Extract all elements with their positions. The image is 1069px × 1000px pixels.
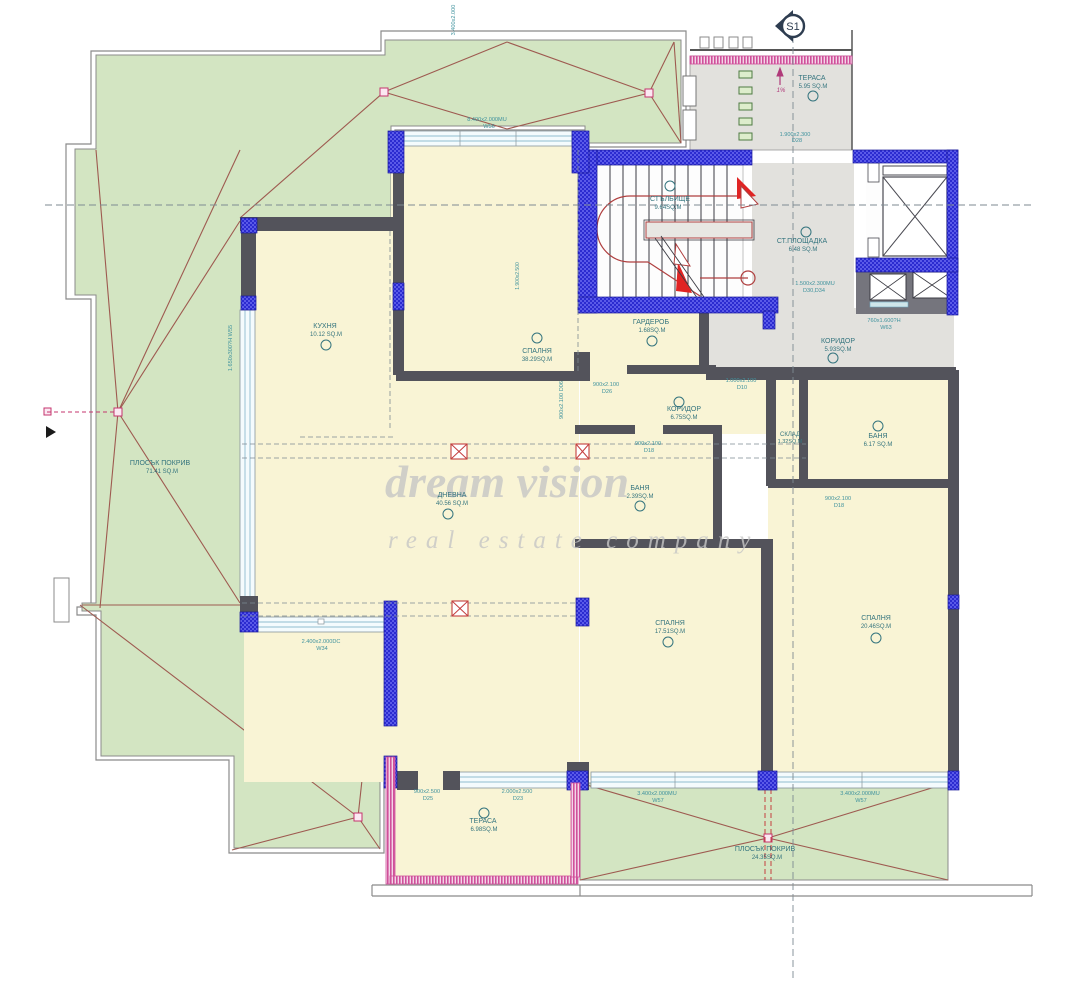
svg-text:dream vision: dream vision bbox=[385, 456, 629, 507]
svg-text:6.75SQ.M: 6.75SQ.M bbox=[670, 415, 697, 421]
svg-text:1.650x300?H W55: 1.650x300?H W55 bbox=[228, 325, 234, 371]
svg-text:W63: W63 bbox=[880, 325, 892, 331]
svg-text:2.39SQ.M: 2.39SQ.M bbox=[626, 494, 653, 500]
svg-text:D23: D23 bbox=[513, 796, 523, 802]
svg-text:W56: W56 bbox=[483, 124, 495, 130]
svg-text:3.400x2.000MU: 3.400x2.000MU bbox=[840, 791, 880, 797]
svg-text:9.64SQ.M: 9.64SQ.M bbox=[654, 205, 681, 211]
svg-text:40.56 SQ.M: 40.56 SQ.M bbox=[436, 501, 468, 507]
svg-text:БАНЯ: БАНЯ bbox=[868, 433, 887, 440]
svg-text:71.41 SQ.M: 71.41 SQ.M bbox=[146, 469, 178, 475]
svg-text:900x2.500: 900x2.500 bbox=[414, 789, 440, 795]
svg-text:ТЕРАСА: ТЕРАСА bbox=[469, 818, 497, 825]
svg-text:real estate company: real estate company bbox=[388, 527, 759, 554]
svg-text:БАНЯ: БАНЯ bbox=[630, 485, 649, 492]
svg-text:38.29SQ.M: 38.29SQ.M bbox=[522, 357, 552, 363]
svg-text:ПЛОСЪК ПОКРИВ: ПЛОСЪК ПОКРИВ bbox=[735, 846, 796, 853]
svg-text:W34: W34 bbox=[316, 646, 328, 652]
svg-text:1%: 1% bbox=[777, 88, 786, 94]
svg-text:D10: D10 bbox=[737, 385, 747, 391]
svg-text:СПАЛНЯ: СПАЛНЯ bbox=[655, 620, 685, 627]
svg-text:6.98SQ.M: 6.98SQ.M bbox=[470, 827, 497, 833]
svg-text:W57: W57 bbox=[855, 798, 867, 804]
svg-text:3.400x2.000MU: 3.400x2.000MU bbox=[637, 791, 677, 797]
svg-text:КОРИДОР: КОРИДОР bbox=[667, 406, 701, 413]
svg-text:1.68SQ.M: 1.68SQ.M bbox=[638, 328, 665, 334]
svg-text:СТЪЛБИЩЕ: СТЪЛБИЩЕ bbox=[650, 196, 690, 203]
svg-text:D26: D26 bbox=[602, 389, 612, 395]
svg-text:6.17 SQ.M: 6.17 SQ.M bbox=[864, 442, 893, 448]
svg-text:КОРИДОР: КОРИДОР bbox=[821, 338, 855, 345]
svg-text:СПАЛНЯ: СПАЛНЯ bbox=[522, 348, 552, 355]
svg-text:ТЕРАСА: ТЕРАСА bbox=[798, 75, 826, 82]
svg-text:2.000x2.500: 2.000x2.500 bbox=[502, 789, 533, 795]
svg-text:ГАРДЕРОБ: ГАРДЕРОБ bbox=[633, 319, 670, 326]
svg-text:ПЛОСЪК ПОКРИВ: ПЛОСЪК ПОКРИВ bbox=[130, 460, 191, 467]
svg-text:6.48 SQ.M: 6.48 SQ.M bbox=[789, 247, 818, 253]
svg-text:W57: W57 bbox=[652, 798, 664, 804]
svg-text:900x2.100: 900x2.100 bbox=[635, 441, 661, 447]
svg-text:1.000x2.100: 1.000x2.100 bbox=[726, 378, 757, 384]
svg-text:СПАЛНЯ: СПАЛНЯ bbox=[861, 615, 891, 622]
svg-text:760x1.600?H: 760x1.600?H bbox=[867, 318, 900, 324]
svg-text:СКЛАД: СКЛАД bbox=[780, 432, 800, 438]
svg-text:900x2.100: 900x2.100 bbox=[825, 496, 851, 502]
svg-text:D18: D18 bbox=[834, 503, 844, 509]
svg-text:17.51SQ.M: 17.51SQ.M bbox=[655, 629, 685, 635]
svg-text:1.500x2.300MU: 1.500x2.300MU bbox=[795, 281, 835, 287]
svg-text:ДНЕВНА: ДНЕВНА bbox=[438, 492, 467, 499]
svg-text:1.900x2.500: 1.900x2.500 bbox=[515, 262, 521, 290]
svg-text:СТ.ПЛОЩАДКА: СТ.ПЛОЩАДКА bbox=[777, 238, 828, 245]
svg-text:8.400x2.000MU: 8.400x2.000MU bbox=[467, 117, 507, 123]
svg-text:20.46SQ.M: 20.46SQ.M bbox=[861, 624, 891, 630]
svg-text:КУХНЯ: КУХНЯ bbox=[313, 323, 336, 330]
svg-text:900x2.100: 900x2.100 bbox=[593, 382, 619, 388]
svg-text:900x2.100 D06: 900x2.100 D06 bbox=[559, 381, 565, 419]
svg-text:10.12 SQ.M: 10.12 SQ.M bbox=[310, 332, 342, 338]
svg-text:D25: D25 bbox=[423, 796, 433, 802]
svg-text:D30,D34: D30,D34 bbox=[803, 288, 825, 294]
svg-text:5.93SQ.M: 5.93SQ.M bbox=[824, 347, 851, 353]
svg-text:1.32SQ.M: 1.32SQ.M bbox=[778, 439, 803, 445]
svg-text:2.400x2.000DC: 2.400x2.000DC bbox=[302, 639, 341, 645]
svg-text:3.400x2.000: 3.400x2.000 bbox=[451, 5, 457, 36]
svg-text:S1: S1 bbox=[786, 21, 799, 33]
svg-text:24.35SQ.M: 24.35SQ.M bbox=[752, 855, 782, 861]
svg-text:D18: D18 bbox=[644, 448, 654, 454]
svg-text:5.95 SQ.M: 5.95 SQ.M bbox=[799, 84, 828, 90]
svg-text:D28: D28 bbox=[792, 138, 802, 144]
